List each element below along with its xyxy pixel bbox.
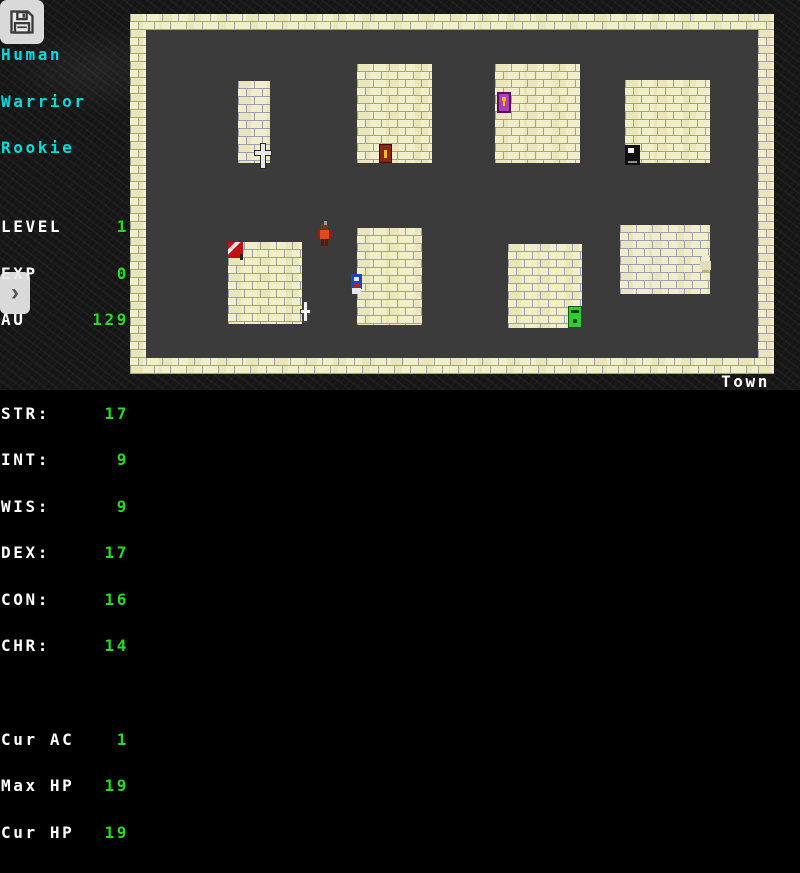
chevron-right-icon: › [11,281,19,305]
save-icon [8,8,36,36]
con-stat-row: CON: 16 [1,592,129,608]
player-sprite [317,221,332,246]
building-2 [357,64,432,163]
sword-sign-sprite [253,143,273,169]
int-stat-row: INT: 9 [1,452,129,468]
town-map[interactable] [130,14,774,374]
race-label: Human [1,47,62,63]
wis-stat-row: WIS: 9 [1,499,129,515]
level-row: LEVEL 1 [1,219,129,235]
green-door-sprite [568,306,582,328]
black-door-sprite [625,145,640,165]
str-stat-row: STR: 17 [1,406,129,422]
save-button[interactable] [0,0,44,44]
cur-hp-row: Cur HP 19 [1,825,129,841]
chr-stat-row: CHR: 14 [1,638,129,654]
purple-door-sprite [497,92,511,113]
building-6 [357,228,422,325]
cave-texture-background: Human Warrior Rookie LEVEL 1 EXP 0 AU 12… [0,0,800,390]
class-label: Warrior [1,94,87,110]
gold-row: AU 129 [1,312,129,328]
town-wall-left [130,14,146,374]
dagger-sign-sprite [298,302,314,325]
brown-door-sprite [379,144,392,163]
building-3 [495,64,580,163]
town-wall-bottom [130,358,774,374]
character-panel: Human Warrior Rookie LEVEL 1 EXP 0 AU 12… [1,16,129,871]
max-hp-row: Max HP 19 [1,778,129,794]
blue-npc-sprite [350,274,363,295]
expand-panel-button[interactable]: › [0,272,30,314]
white-npc-sprite [699,254,712,273]
location-label: Town [721,372,770,391]
town-wall-right [758,14,774,374]
red-flag-sign-sprite [228,242,245,260]
dex-stat-row: DEX: 17 [1,545,129,561]
town-wall-top [130,14,774,30]
building-8 [620,225,710,294]
ac-row: Cur AC 1 [1,732,129,748]
title-label: Rookie [1,140,74,156]
